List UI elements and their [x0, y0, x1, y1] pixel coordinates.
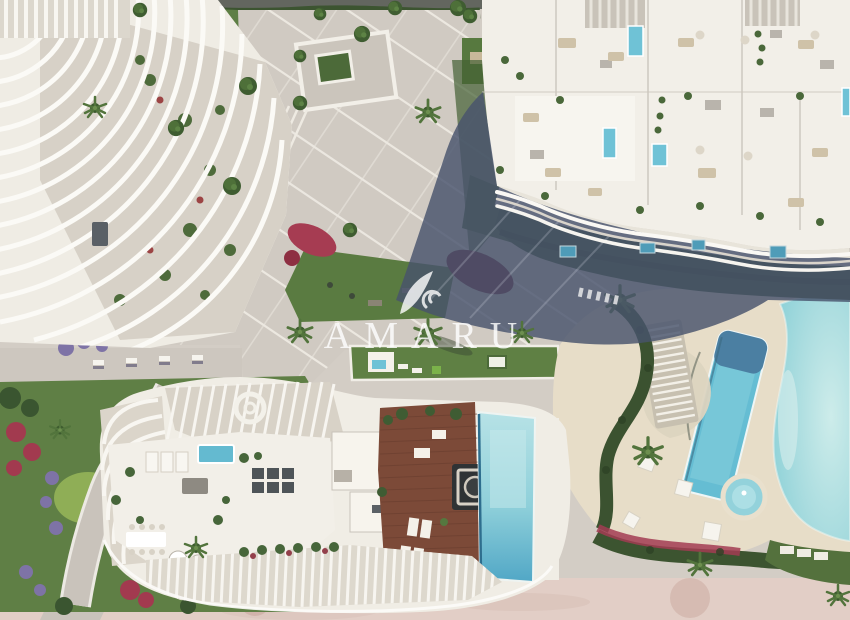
aerial-render-stage: AMARU — [0, 0, 850, 620]
kids-pool — [723, 476, 765, 518]
building-south — [100, 377, 571, 613]
building-northwest — [0, 0, 292, 352]
rooftop-pool — [478, 412, 559, 582]
aerial-render: AMARU — [0, 0, 850, 620]
amaru-wordmark: AMARU — [324, 315, 530, 357]
